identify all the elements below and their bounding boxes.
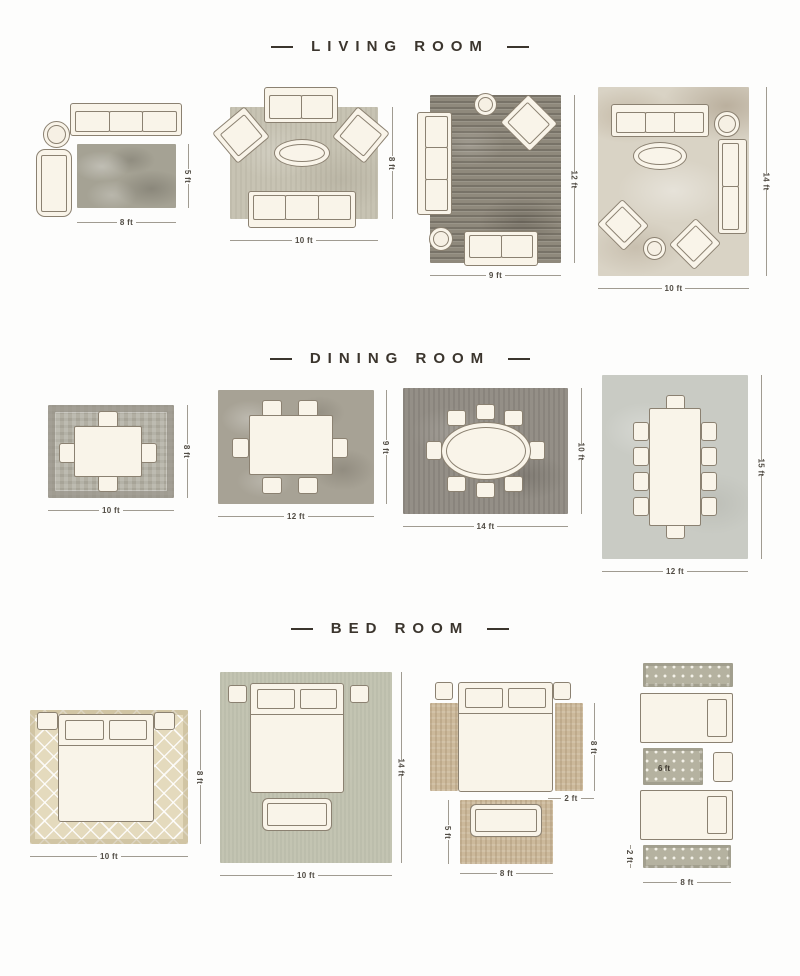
bedroom-layout-10x14: 14 ft 10 ft (218, 672, 403, 879)
dining-chair (476, 482, 495, 498)
table-top (478, 97, 493, 112)
runner-rug (555, 703, 583, 791)
table-top (433, 231, 449, 247)
bed (58, 714, 154, 822)
dining-chair (232, 438, 249, 458)
dim-line (123, 510, 174, 511)
sheet-line (251, 714, 343, 715)
dim-line (685, 288, 749, 289)
nightstand (435, 682, 453, 700)
height-label: 14 ft (395, 672, 407, 863)
cushion-column (722, 143, 739, 230)
width-label: 9 ft (430, 270, 561, 280)
nightstand (154, 712, 175, 730)
pillow-row (59, 715, 153, 740)
width-value: 10 ft (100, 852, 118, 861)
dining-chair (701, 497, 717, 516)
height-value: 15 ft (757, 458, 766, 476)
dining-chair (701, 422, 717, 441)
nightstand (553, 682, 571, 700)
height-value: 8 ft (388, 156, 397, 169)
dim-line (594, 703, 595, 740)
dim-line (401, 672, 402, 760)
side-table (643, 237, 666, 260)
seat-cushion (722, 143, 739, 187)
dim-line (318, 875, 392, 876)
section-header-bedroom: BED ROOM (0, 620, 800, 637)
living-layout-9x12: 12 ft 9 ft (415, 93, 583, 283)
width-label: 10 ft (30, 851, 188, 861)
armchair (36, 149, 72, 217)
width-label: 12 ft (218, 511, 374, 521)
title-dash (508, 358, 530, 360)
seat-cushion (109, 111, 144, 132)
bedroom-layout-twin-runners: 6 ft 2 ft 8 ft (618, 655, 783, 892)
height-value: 2 ft (626, 850, 635, 863)
bench-cushion (475, 809, 537, 832)
table-top (647, 241, 662, 256)
dim-line (187, 405, 188, 444)
width-label: 8 ft (77, 217, 176, 227)
cushion-column (425, 116, 448, 211)
seat-cushion (425, 116, 448, 148)
width-value: 8 ft (500, 869, 513, 878)
section-title-dining: DINING ROOM (310, 350, 490, 367)
dining-table (441, 422, 531, 480)
loveseat (718, 139, 747, 234)
bench (470, 804, 542, 837)
living-layout-8x5: 5 ft 8 ft (30, 95, 205, 235)
seat-cushion (674, 112, 704, 133)
width-value: 8 ft (680, 878, 693, 887)
dim-line (200, 785, 201, 845)
loveseat (264, 87, 338, 123)
runner-width-label: 2 ft (548, 793, 594, 803)
seat-cushion (469, 235, 502, 258)
pillow (65, 720, 104, 740)
nightstand (350, 685, 369, 703)
seat-cushion (722, 186, 739, 230)
dining-layout-14x10: 10 ft 14 ft (403, 388, 583, 530)
dim-line (392, 171, 393, 220)
foot-rug-height-label: 5 ft (442, 800, 454, 864)
dim-line (581, 388, 582, 444)
dim-line (136, 222, 176, 223)
pillow (707, 796, 727, 834)
between-beds-rug: 6 ft (643, 748, 703, 785)
dining-chair (504, 476, 523, 492)
dining-chair (447, 476, 466, 492)
pillow (109, 720, 148, 740)
dining-chair (447, 410, 466, 426)
runner-height-label: 8 ft (588, 703, 600, 791)
dining-chair (476, 404, 495, 420)
dim-line (630, 845, 631, 849)
dim-line (497, 526, 568, 527)
dining-layout-10x8: 8 ft 10 ft (45, 405, 195, 517)
seat-cushion (425, 179, 448, 211)
width-label: 10 ft (598, 283, 749, 293)
width-value: 8 ft (120, 218, 133, 227)
dining-table (649, 408, 701, 526)
table-top (638, 147, 682, 165)
dim-line (121, 856, 188, 857)
twin-bed (640, 790, 733, 840)
height-label: 8 ft (194, 710, 206, 844)
dim-line (308, 516, 374, 517)
bench (262, 798, 332, 831)
twin-bed (640, 693, 733, 743)
dim-line (316, 240, 378, 241)
dim-line (188, 144, 189, 169)
height-label: 5 ft (182, 144, 194, 208)
dim-line (581, 459, 582, 515)
dim-line (386, 390, 387, 440)
dim-line (230, 240, 292, 241)
title-dash (271, 46, 293, 48)
dim-line (430, 275, 486, 276)
width-value: 10 ft (295, 236, 313, 245)
cushion-row (469, 235, 533, 258)
nightstand (713, 752, 733, 782)
seat-cushion (301, 95, 334, 119)
coffee-table (274, 139, 330, 167)
pillow (465, 688, 503, 708)
seat-cushion (269, 95, 302, 119)
height-label: 12 ft (568, 95, 580, 263)
bedroom-layout-10x8: 8 ft 10 ft (30, 700, 210, 862)
dim-line (200, 710, 201, 770)
height-label: 10 ft (575, 388, 587, 514)
height-label: 8 ft (181, 405, 193, 498)
dim-line (386, 455, 387, 505)
dining-table (74, 426, 142, 477)
runner-rug (430, 703, 458, 791)
width-label: 10 ft (220, 870, 392, 880)
dim-line (581, 798, 594, 799)
pillow-row (459, 683, 552, 708)
seat-cushion (41, 155, 67, 212)
title-dash (507, 46, 529, 48)
dining-chair (331, 438, 348, 458)
dim-line (766, 87, 767, 174)
section-header-living: LIVING ROOM (0, 38, 800, 55)
width-label: 12 ft (602, 566, 748, 576)
seat-cushion (318, 195, 351, 220)
seat-cushion (501, 235, 534, 258)
dim-line (766, 189, 767, 276)
dining-chair (262, 477, 282, 494)
dim-line (630, 864, 631, 868)
cushion-row (616, 112, 704, 133)
height-value: 8 ft (196, 770, 205, 783)
seat-cushion (75, 111, 110, 132)
table-top (279, 144, 325, 162)
height-value: 14 ft (762, 173, 771, 191)
width-label: 10 ft (48, 505, 174, 515)
sofa (70, 103, 182, 136)
title-dash (487, 628, 509, 630)
foot-rug-width-label: 8 ft (460, 868, 553, 878)
dim-line (516, 873, 553, 874)
nightstand (37, 712, 58, 730)
width-label: 8 ft (643, 877, 731, 887)
pillow (300, 689, 338, 709)
height-label: 9 ft (380, 390, 392, 504)
dim-line (761, 475, 762, 560)
dim-line (220, 875, 294, 876)
title-dash (270, 358, 292, 360)
rug (77, 144, 176, 208)
rug-size-guide: LIVING ROOM 5 ft 8 ft (0, 0, 800, 976)
cushion-row (253, 195, 351, 220)
dim-line (687, 571, 748, 572)
height-label: 8 ft (386, 107, 398, 219)
dining-chair (504, 410, 523, 426)
side-table (714, 111, 740, 137)
runner-height-label: 2 ft (624, 845, 636, 868)
width-value: 10 ft (297, 871, 315, 880)
dim-line (598, 288, 662, 289)
pillow-row (251, 684, 343, 709)
dim-line (548, 798, 561, 799)
title-dash (291, 628, 313, 630)
dim-line (761, 375, 762, 460)
sheet-line (59, 745, 153, 746)
nightstand (228, 685, 247, 703)
runner-rug (643, 663, 733, 687)
dim-line (643, 882, 677, 883)
height-value: 14 ft (397, 759, 406, 777)
section-title-bedroom: BED ROOM (331, 620, 470, 637)
height-value: 10 ft (577, 442, 586, 460)
seat-cushion (142, 111, 177, 132)
width-value: 10 ft (102, 506, 120, 515)
runner-rug (643, 845, 731, 868)
pillow (508, 688, 546, 708)
dining-chair (529, 441, 545, 460)
seat-cushion (253, 195, 286, 220)
section-title-living: LIVING ROOM (311, 38, 489, 55)
dim-line (187, 459, 188, 498)
dim-line (448, 840, 449, 865)
side-table (474, 93, 497, 116)
height-value: 12 ft (570, 170, 579, 188)
dining-chair (633, 497, 649, 516)
height-value: 8 ft (590, 740, 599, 753)
dining-table (249, 415, 333, 475)
dim-line (574, 187, 575, 264)
cushion-row (75, 111, 177, 132)
loveseat (464, 231, 538, 266)
living-layout-10x8: 8 ft 10 ft (218, 85, 400, 250)
width-value: 10 ft (665, 284, 683, 293)
height-value: 5 ft (444, 825, 453, 838)
dining-chair (633, 447, 649, 466)
dining-chair (98, 475, 118, 492)
width-value: 14 ft (477, 522, 495, 531)
dim-line (401, 775, 402, 863)
coffee-table (633, 142, 687, 170)
side-table (429, 227, 453, 251)
dining-chair (298, 477, 318, 494)
width-value: 2 ft (564, 794, 577, 803)
dim-line (460, 873, 497, 874)
dining-chair (140, 443, 157, 463)
dim-line (448, 800, 449, 825)
cushion-row (269, 95, 333, 119)
width-label: 14 ft (403, 521, 568, 531)
sofa (248, 191, 356, 228)
height-label: 14 ft (760, 87, 772, 276)
dining-chair (701, 447, 717, 466)
seat-cushion (645, 112, 675, 133)
seat-cushion (616, 112, 646, 133)
sheet-line (459, 713, 552, 714)
rug-size-value: 6 ft (658, 764, 670, 773)
dim-line (218, 516, 284, 517)
pillow (257, 689, 295, 709)
height-value: 8 ft (183, 445, 192, 458)
bench-cushion (267, 803, 327, 826)
dining-layout-12x9: 9 ft 12 ft (215, 390, 391, 522)
seat-cushion (425, 147, 448, 179)
dim-line (403, 526, 474, 527)
dining-layout-12x15: 15 ft 12 ft (602, 375, 767, 577)
sofa (611, 104, 709, 137)
bed (250, 683, 344, 793)
pillow (707, 699, 727, 737)
dim-line (30, 856, 97, 857)
width-value: 9 ft (489, 271, 502, 280)
dim-line (505, 275, 561, 276)
table-top (446, 427, 526, 475)
dining-chair (633, 472, 649, 491)
section-header-dining: DINING ROOM (0, 350, 800, 367)
width-label: 10 ft (230, 235, 378, 245)
table-top (47, 125, 66, 144)
dim-line (48, 510, 99, 511)
side-table (43, 121, 70, 148)
height-label: 15 ft (755, 375, 767, 559)
dim-line (697, 882, 731, 883)
height-value: 5 ft (184, 169, 193, 182)
dim-line (594, 755, 595, 792)
dim-line (392, 107, 393, 156)
seat-cushion (285, 195, 318, 220)
bedroom-layout-runners: 8 ft 2 ft 5 ft 8 ft (428, 672, 604, 879)
dim-line (574, 95, 575, 172)
bed (458, 682, 553, 792)
dim-line (188, 184, 189, 209)
dim-line (602, 571, 663, 572)
dining-chair (701, 472, 717, 491)
dining-chair (426, 441, 442, 460)
sofa (417, 112, 452, 215)
width-value: 12 ft (287, 512, 305, 521)
height-value: 9 ft (382, 440, 391, 453)
living-layout-10x14: 14 ft 10 ft (598, 85, 776, 293)
dim-line (77, 222, 117, 223)
table-top (718, 115, 736, 133)
dining-chair (633, 422, 649, 441)
width-value: 12 ft (666, 567, 684, 576)
